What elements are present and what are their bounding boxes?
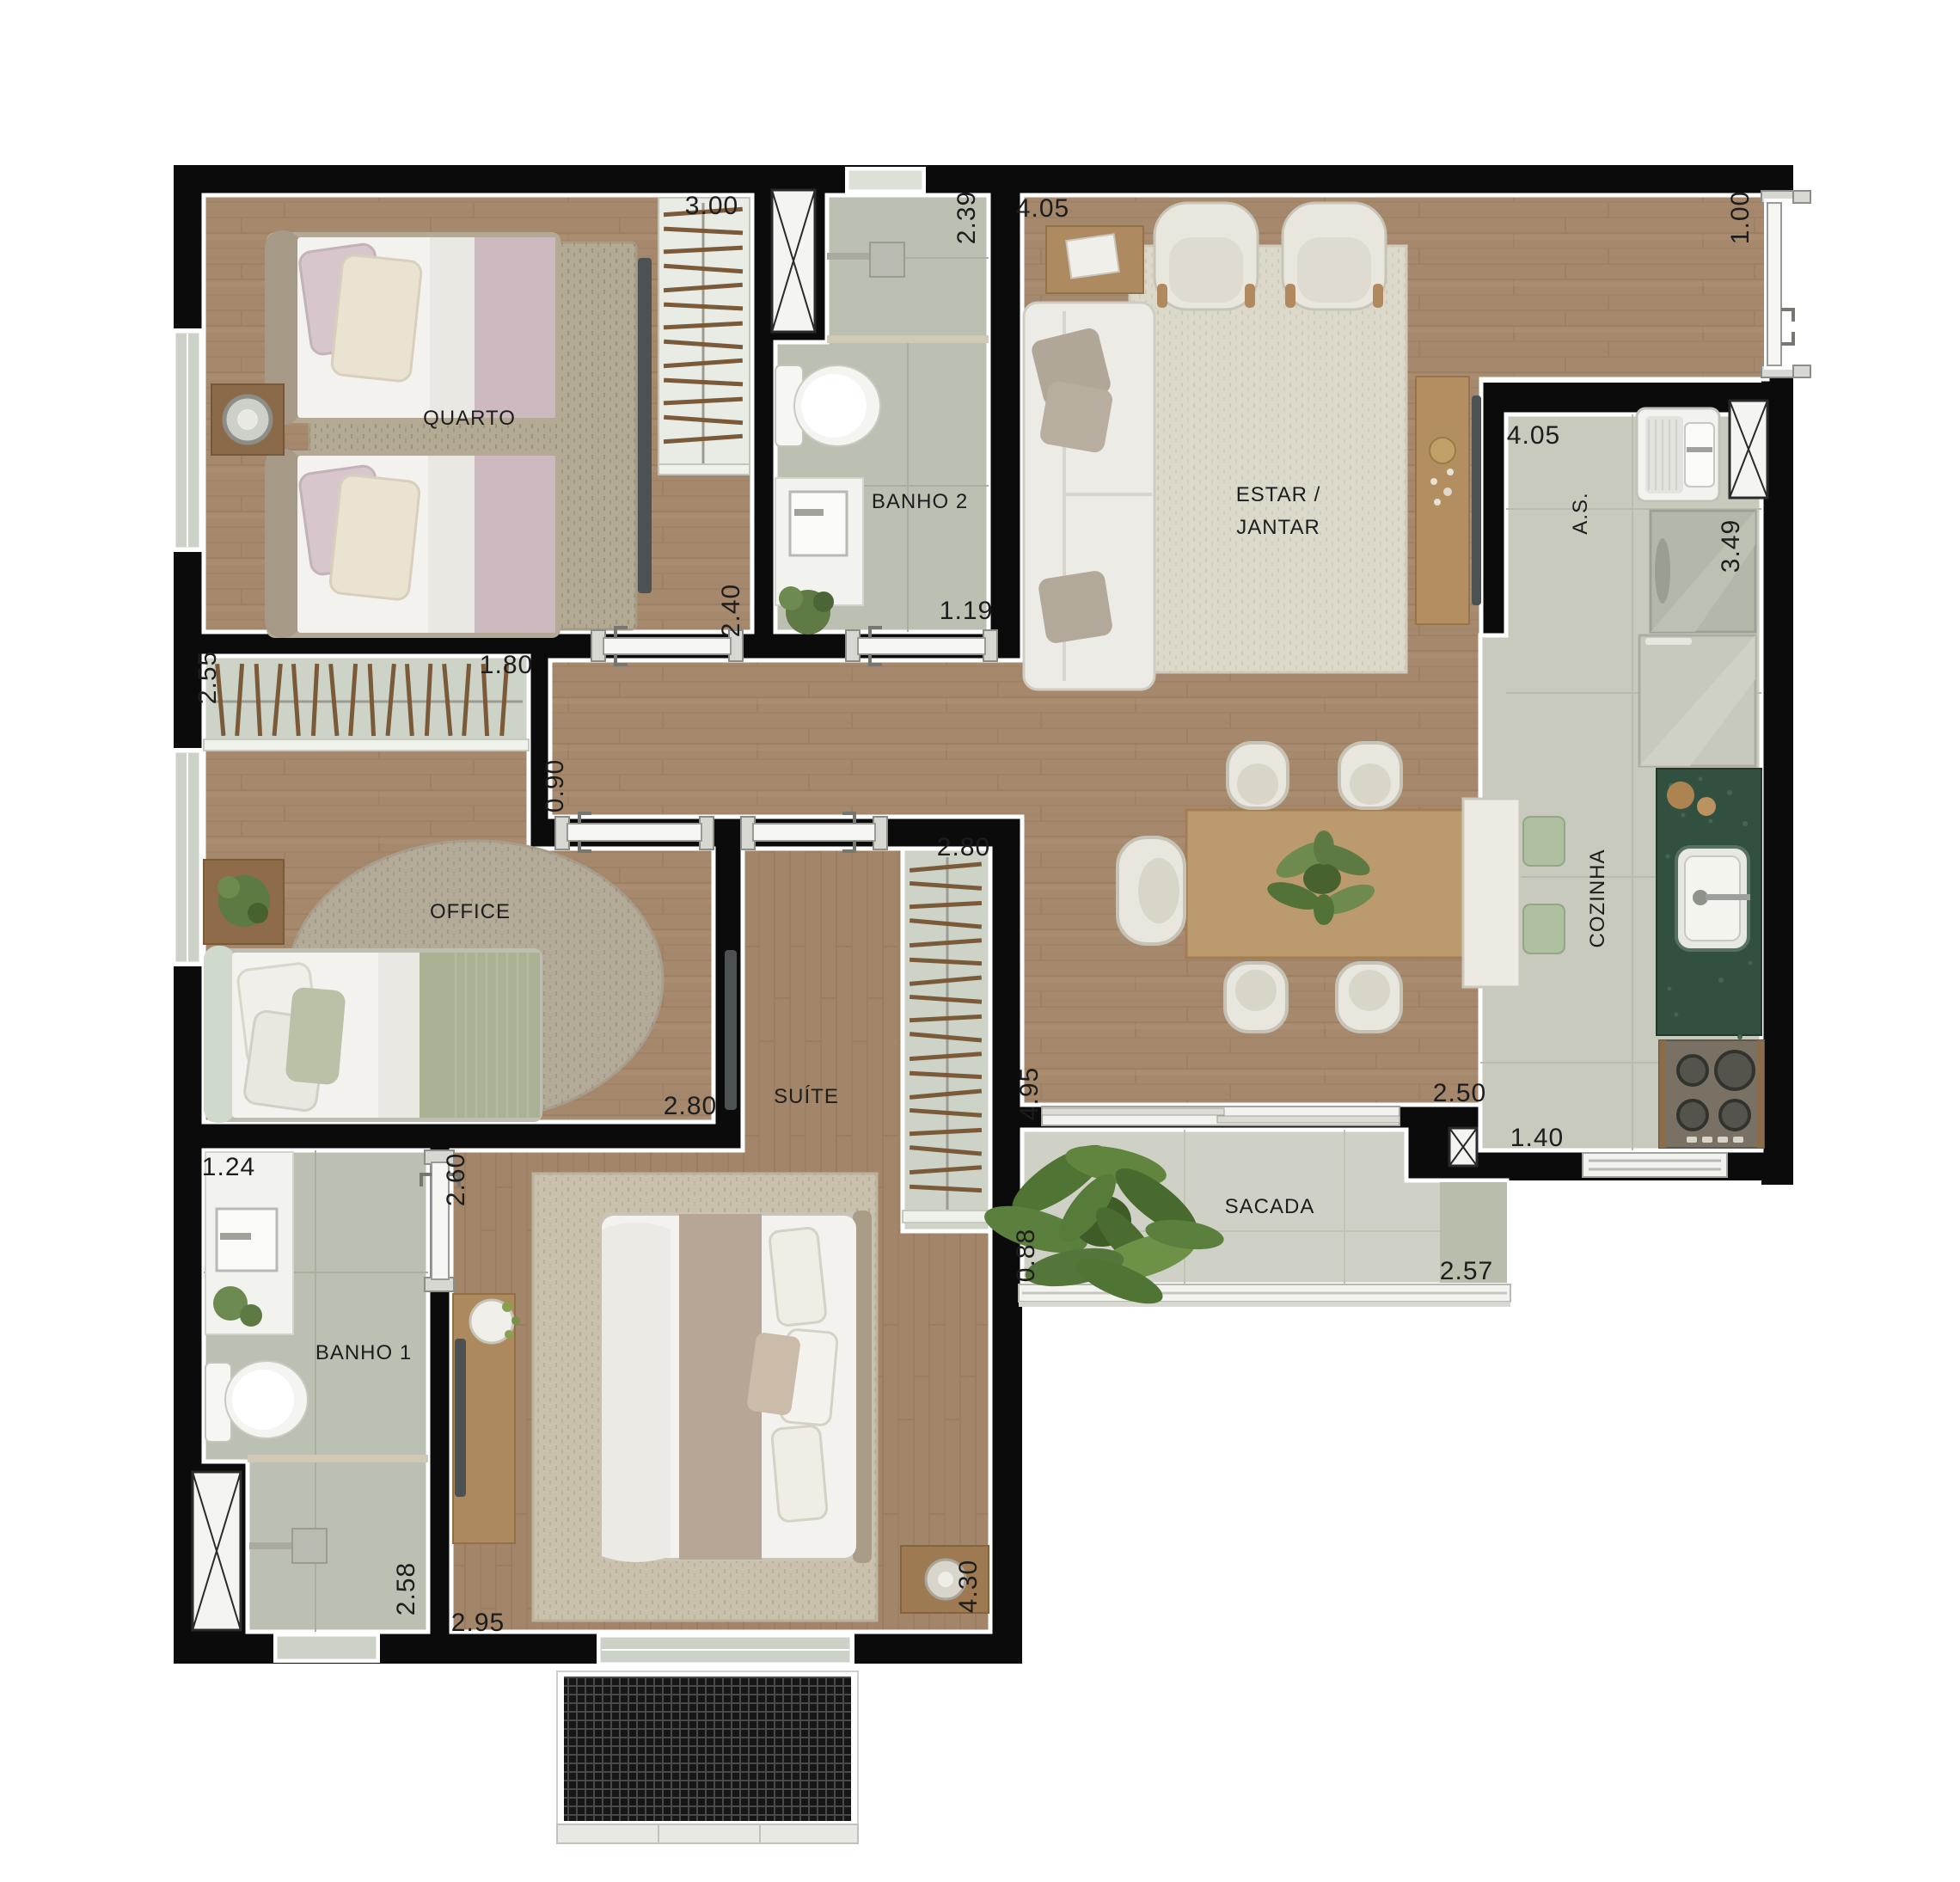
svg-text:ESTAR /: ESTAR / bbox=[1236, 483, 1321, 506]
svg-text:2.50: 2.50 bbox=[1433, 1079, 1486, 1107]
svg-text:3.49: 3.49 bbox=[1717, 519, 1745, 573]
svg-text:BANHO 1: BANHO 1 bbox=[315, 1341, 412, 1364]
svg-text:2.55: 2.55 bbox=[193, 651, 222, 704]
svg-text:2.57: 2.57 bbox=[1440, 1257, 1493, 1285]
svg-text:2.58: 2.58 bbox=[392, 1562, 420, 1615]
svg-text:1.24: 1.24 bbox=[202, 1153, 255, 1181]
svg-text:0.90: 0.90 bbox=[541, 759, 569, 812]
svg-text:2.80: 2.80 bbox=[664, 1092, 717, 1120]
svg-text:0.88: 0.88 bbox=[1012, 1229, 1040, 1282]
svg-text:2.40: 2.40 bbox=[717, 584, 745, 637]
svg-text:4.30: 4.30 bbox=[954, 1560, 983, 1613]
svg-text:4.05: 4.05 bbox=[1016, 194, 1069, 223]
svg-text:JANTAR: JANTAR bbox=[1236, 516, 1320, 539]
svg-text:1.19: 1.19 bbox=[940, 597, 993, 625]
svg-text:2.60: 2.60 bbox=[442, 1153, 470, 1206]
svg-text:2.95: 2.95 bbox=[451, 1609, 505, 1637]
svg-text:SACADA: SACADA bbox=[1225, 1195, 1315, 1218]
svg-text:A.S.: A.S. bbox=[1569, 492, 1592, 534]
svg-text:1.00: 1.00 bbox=[1726, 191, 1755, 244]
svg-text:1.40: 1.40 bbox=[1510, 1124, 1564, 1152]
svg-text:OFFICE: OFFICE bbox=[430, 900, 511, 923]
svg-text:4.95: 4.95 bbox=[1015, 1067, 1044, 1120]
svg-text:QUARTO: QUARTO bbox=[423, 407, 516, 430]
svg-text:2.80: 2.80 bbox=[937, 833, 990, 861]
svg-text:SUÍTE: SUÍTE bbox=[774, 1085, 839, 1108]
svg-text:COZINHA: COZINHA bbox=[1586, 849, 1609, 948]
svg-text:2.39: 2.39 bbox=[952, 191, 981, 244]
svg-text:1.80: 1.80 bbox=[480, 651, 533, 679]
svg-text:4.05: 4.05 bbox=[1507, 421, 1560, 450]
svg-text:3.00: 3.00 bbox=[685, 192, 738, 220]
svg-text:BANHO 2: BANHO 2 bbox=[872, 490, 968, 513]
